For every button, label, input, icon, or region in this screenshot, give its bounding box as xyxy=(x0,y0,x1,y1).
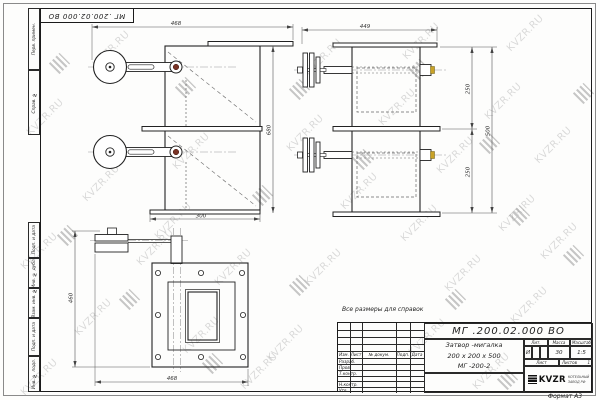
margin-label: Инв. № дубл. xyxy=(32,258,37,288)
mass-value: 30 xyxy=(548,346,570,359)
company-cell: KVZR КОТЕЛЬНЫЙ ЗАВОД РФ xyxy=(524,366,593,393)
lit-header: Лит. xyxy=(524,339,548,346)
row-tkontr: Т.контр. xyxy=(339,371,357,377)
part-name-cell: Затвор -мигалка 200 х 200 х 500 МГ -200-… xyxy=(424,339,524,373)
sheet-cell: Лист xyxy=(524,359,559,366)
col-izm: Изм. xyxy=(338,352,350,358)
part-name: Затвор -мигалка xyxy=(446,340,503,350)
margin-cell-vzam-inv: Взам. инв. № xyxy=(28,288,40,318)
company-logo-text: KVZR xyxy=(539,375,566,385)
company-name-line2: ЗАВОД РФ xyxy=(568,380,589,385)
title-block: Изм. Лист № докум. Подп. Дата Разраб. Пр… xyxy=(337,322,592,392)
top-designation-text: МГ .200.02.000 ВО xyxy=(48,12,125,20)
top-designation-box: МГ .200.02.000 ВО xyxy=(40,8,134,23)
col-doc: № докум. xyxy=(362,352,396,358)
margin-cell-inv-podl: Инв. № подл. xyxy=(28,356,40,392)
drawing-designation: МГ .200.02.000 ВО xyxy=(424,323,593,339)
col-list: Лист xyxy=(350,352,362,358)
margin-label: Подп. и дата xyxy=(32,225,37,254)
sheets-value: 1 xyxy=(587,360,590,365)
mass-header: Масса xyxy=(548,339,570,346)
lit-value-cell: И xyxy=(524,346,532,359)
margin-label: Справ. № xyxy=(32,92,37,113)
margin-cell-podp-data-2: Подп. и дата xyxy=(28,318,40,356)
drawing-sheet: KVZR.RU KVZR.RU KVZR.RU KVZR.RU KVZR.RU … xyxy=(0,0,600,400)
margin-cell-sprav: Справ. № xyxy=(28,70,40,135)
col-data: Дата xyxy=(410,352,424,358)
part-size: 200 х 200 х 500 xyxy=(447,351,500,361)
margin-cell-inv-dubl: Инв. № дубл. xyxy=(28,258,40,288)
margin-label: Инв. № подл. xyxy=(32,359,37,389)
margin-label: Взам. инв. № xyxy=(32,288,37,318)
scale-header: Масштаб xyxy=(570,339,593,346)
name-extension-cell xyxy=(424,373,524,393)
scale-value: 1:5 xyxy=(570,346,593,359)
margin-label: Подп. и дата xyxy=(32,322,37,351)
sheets-cell: Листов 1 xyxy=(559,359,593,366)
format-label: Формат А3 xyxy=(520,393,600,400)
part-model: МГ -200-2 xyxy=(458,361,491,371)
sheets-header: Листов xyxy=(562,360,577,365)
lit-empty-cell xyxy=(540,346,548,359)
lit-empty-cell xyxy=(532,346,540,359)
reference-note: Все размеры для справок xyxy=(342,306,423,313)
margin-cell-podp-data-1: Подп. и дата xyxy=(28,222,40,258)
margin-cell-perv-primen: Перв. примен. xyxy=(28,8,40,70)
col-podp: Подп. xyxy=(396,352,410,358)
kvzr-logo-icon xyxy=(528,375,537,384)
margin-label: Перв. примен. xyxy=(32,23,37,55)
row-utv: Утв. xyxy=(339,388,348,394)
